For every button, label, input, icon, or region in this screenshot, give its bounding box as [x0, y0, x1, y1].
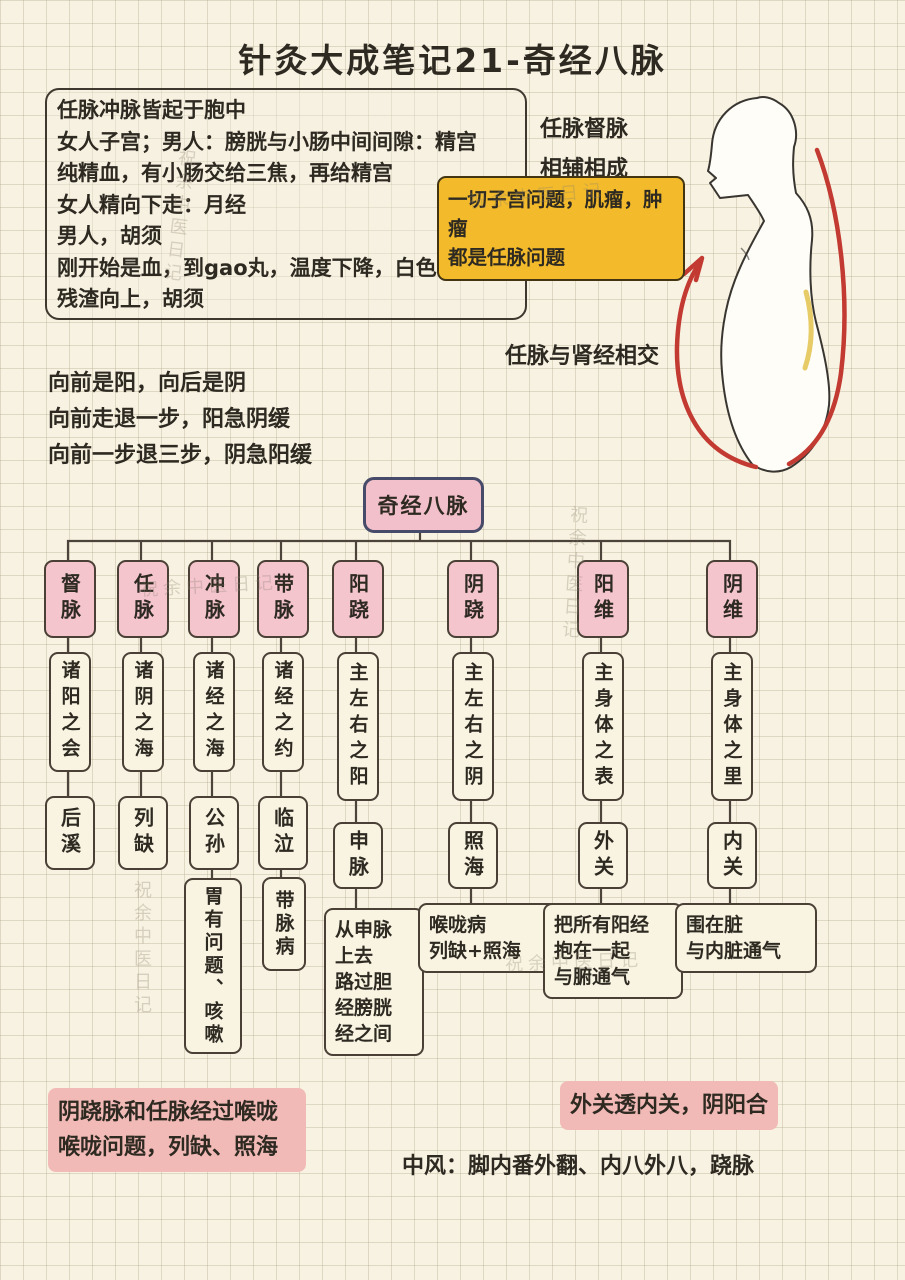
note-box-yang-qiao-path: 从申脉 上去 路过胆 经膀胱 经之间 [324, 908, 424, 1056]
yinyang-note-line: 向前一步退三步，阴急阳缓 [48, 438, 312, 474]
desc-box-dai-mai: 诸经之约 [262, 652, 304, 772]
body-figure-sketch [660, 90, 900, 490]
branch-box-dai-mai: 带脉 [257, 560, 309, 638]
figure-caption: 任脉与肾经相交 [505, 338, 659, 370]
bottom-left-throat-note: 阴跷脉和任脉经过喉咙 喉咙问题，列缺、照海 [48, 1088, 306, 1172]
notebook-page: 针灸大成笔记21-奇经八脉 任脉冲脉皆起于胞中 女人子宫；男人：膀胱与小肠中间间… [0, 0, 905, 1280]
note-line: 任脉冲脉皆起于胞中 [57, 95, 515, 127]
desc-box-yang-qiao: 主左右之阳 [337, 652, 379, 801]
branch-box-chong-mai: 冲脉 [188, 560, 240, 638]
page-title: 针灸大成笔记21-奇经八脉 [0, 34, 905, 82]
note-box-dai-mai-disease: 带脉病 [262, 877, 306, 971]
note-box-yang-wei-fu: 把所有阳经 抱在一起 与腑通气 [543, 903, 683, 999]
point-box-gongsun: 公孙 [189, 796, 239, 870]
point-box-shenmai: 申脉 [333, 822, 383, 889]
point-box-zhaohai: 照海 [448, 822, 498, 889]
desc-box-ren-mai: 诸阴之海 [122, 652, 164, 772]
tree-root-eight-extraordinary-meridians: 奇经八脉 [363, 477, 484, 533]
note-line: 残渣向上，胡须 [57, 284, 515, 316]
branch-box-yang-wei: 阳维 [577, 560, 629, 638]
desc-box-du-mai: 诸阳之会 [49, 652, 91, 772]
uterus-yellow-note: 一切子宫问题，肌瘤，肿瘤 都是任脉问题 [437, 176, 685, 281]
desc-box-chong-mai: 诸经之海 [193, 652, 235, 772]
branch-box-yin-wei: 阴维 [706, 560, 758, 638]
note-box-yin-wei-zang: 围在脏 与内脏通气 [675, 903, 817, 973]
desc-box-yang-wei: 主身体之表 [582, 652, 624, 801]
point-box-houxi: 后溪 [45, 796, 95, 870]
yinyang-note-line: 向前是阳，向后是阴 [48, 366, 312, 402]
yinyang-note-line: 向前走退一步，阳急阴缓 [48, 402, 312, 438]
desc-box-yin-qiao: 主左右之阴 [452, 652, 494, 801]
branch-box-yin-qiao: 阴跷 [447, 560, 499, 638]
branch-box-yang-qiao: 阳跷 [332, 560, 384, 638]
point-box-linqi: 临泣 [258, 796, 308, 870]
body-outline [708, 97, 829, 472]
point-box-lieque: 列缺 [118, 796, 168, 870]
point-box-neiguan: 内关 [707, 822, 757, 889]
note-line: 女人子宫；男人：膀胱与小肠中间间隙：精宫 [57, 127, 515, 159]
stroke-note: 中风：脚内番外翻、内八外八，跷脉 [402, 1148, 754, 1180]
yinyang-note-block: 向前是阳，向后是阴 向前走退一步，阳急阴缓 向前一步退三步，阴急阳缓 [48, 366, 312, 474]
branch-box-du-mai: 督脉 [44, 560, 96, 638]
bottom-right-waiguan-note: 外关透内关，阴阳合 [560, 1081, 778, 1130]
note-box-chong-mai-stomach: 胃有问题、咳嗽 [184, 878, 242, 1054]
desc-box-yin-wei: 主身体之里 [711, 652, 753, 801]
branch-box-ren-mai: 任脉 [117, 560, 169, 638]
point-box-waiguan: 外关 [578, 822, 628, 889]
